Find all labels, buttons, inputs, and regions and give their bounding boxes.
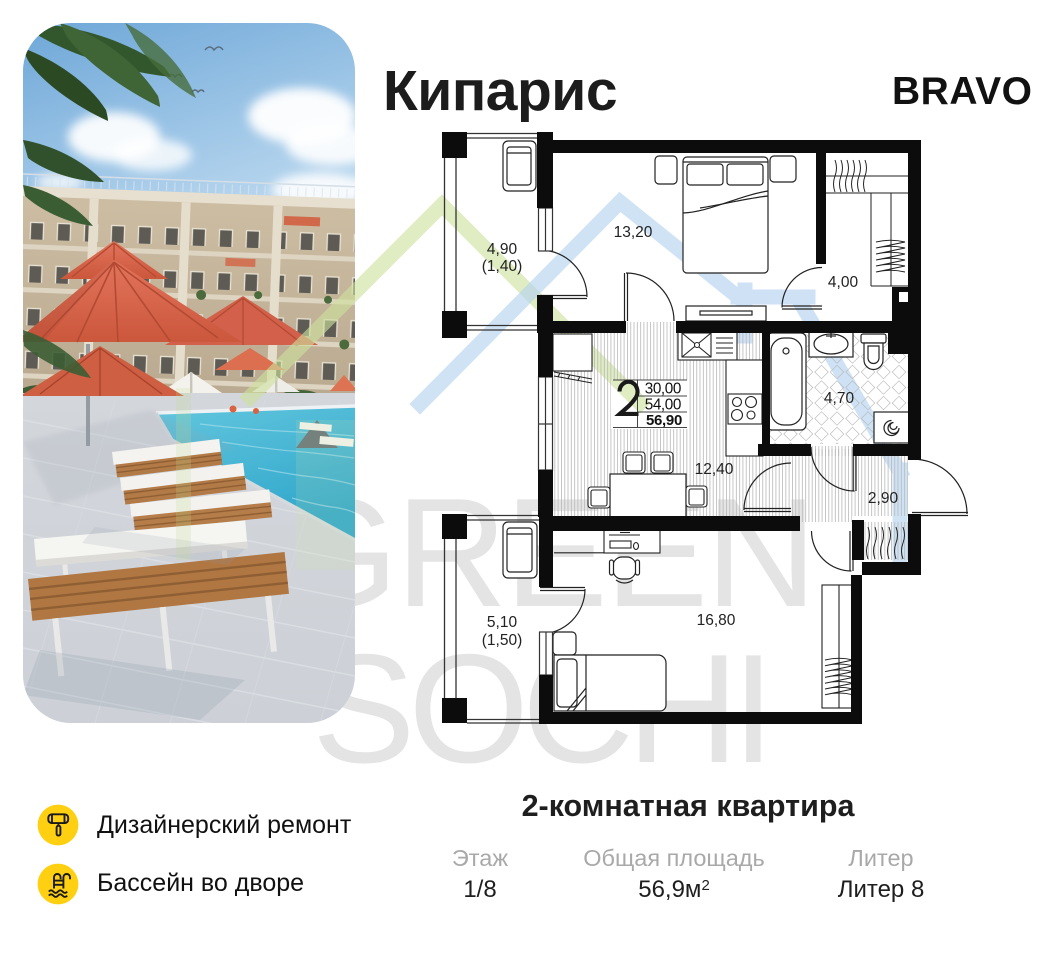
svg-text:13,20: 13,20 <box>614 224 653 241</box>
svg-text:Бассейн во дворе: Бассейн во дворе <box>97 869 304 897</box>
svg-text:4,70: 4,70 <box>824 390 855 407</box>
svg-text:4,00: 4,00 <box>828 274 859 291</box>
svg-text:16,80: 16,80 <box>697 612 736 629</box>
svg-text:56,90: 56,90 <box>646 412 682 429</box>
svg-text:Литер: Литер <box>848 845 913 871</box>
svg-text:54,00: 54,00 <box>645 397 681 414</box>
svg-text:4,90: 4,90 <box>487 241 518 258</box>
svg-text:12,40: 12,40 <box>695 461 734 478</box>
svg-text:5,10: 5,10 <box>487 614 518 631</box>
svg-text:Кипарис: Кипарис <box>383 59 617 123</box>
svg-text:Литер 8: Литер 8 <box>838 876 925 903</box>
svg-text:56,9м2: 56,9м2 <box>638 876 710 903</box>
svg-text:30,00: 30,00 <box>645 381 681 398</box>
svg-text:Общая площадь: Общая площадь <box>583 845 765 871</box>
svg-text:2,90: 2,90 <box>868 490 899 507</box>
svg-text:Этаж: Этаж <box>452 845 508 871</box>
svg-text:2-комнатная квартира: 2-комнатная квартира <box>522 789 856 823</box>
svg-text:Дизайнерский ремонт: Дизайнерский ремонт <box>97 811 352 839</box>
svg-text:1/8: 1/8 <box>463 876 496 903</box>
svg-text:(1,40): (1,40) <box>482 258 523 275</box>
svg-text:BRAVO: BRAVO <box>892 70 1032 113</box>
svg-text:(1,50): (1,50) <box>482 632 523 649</box>
